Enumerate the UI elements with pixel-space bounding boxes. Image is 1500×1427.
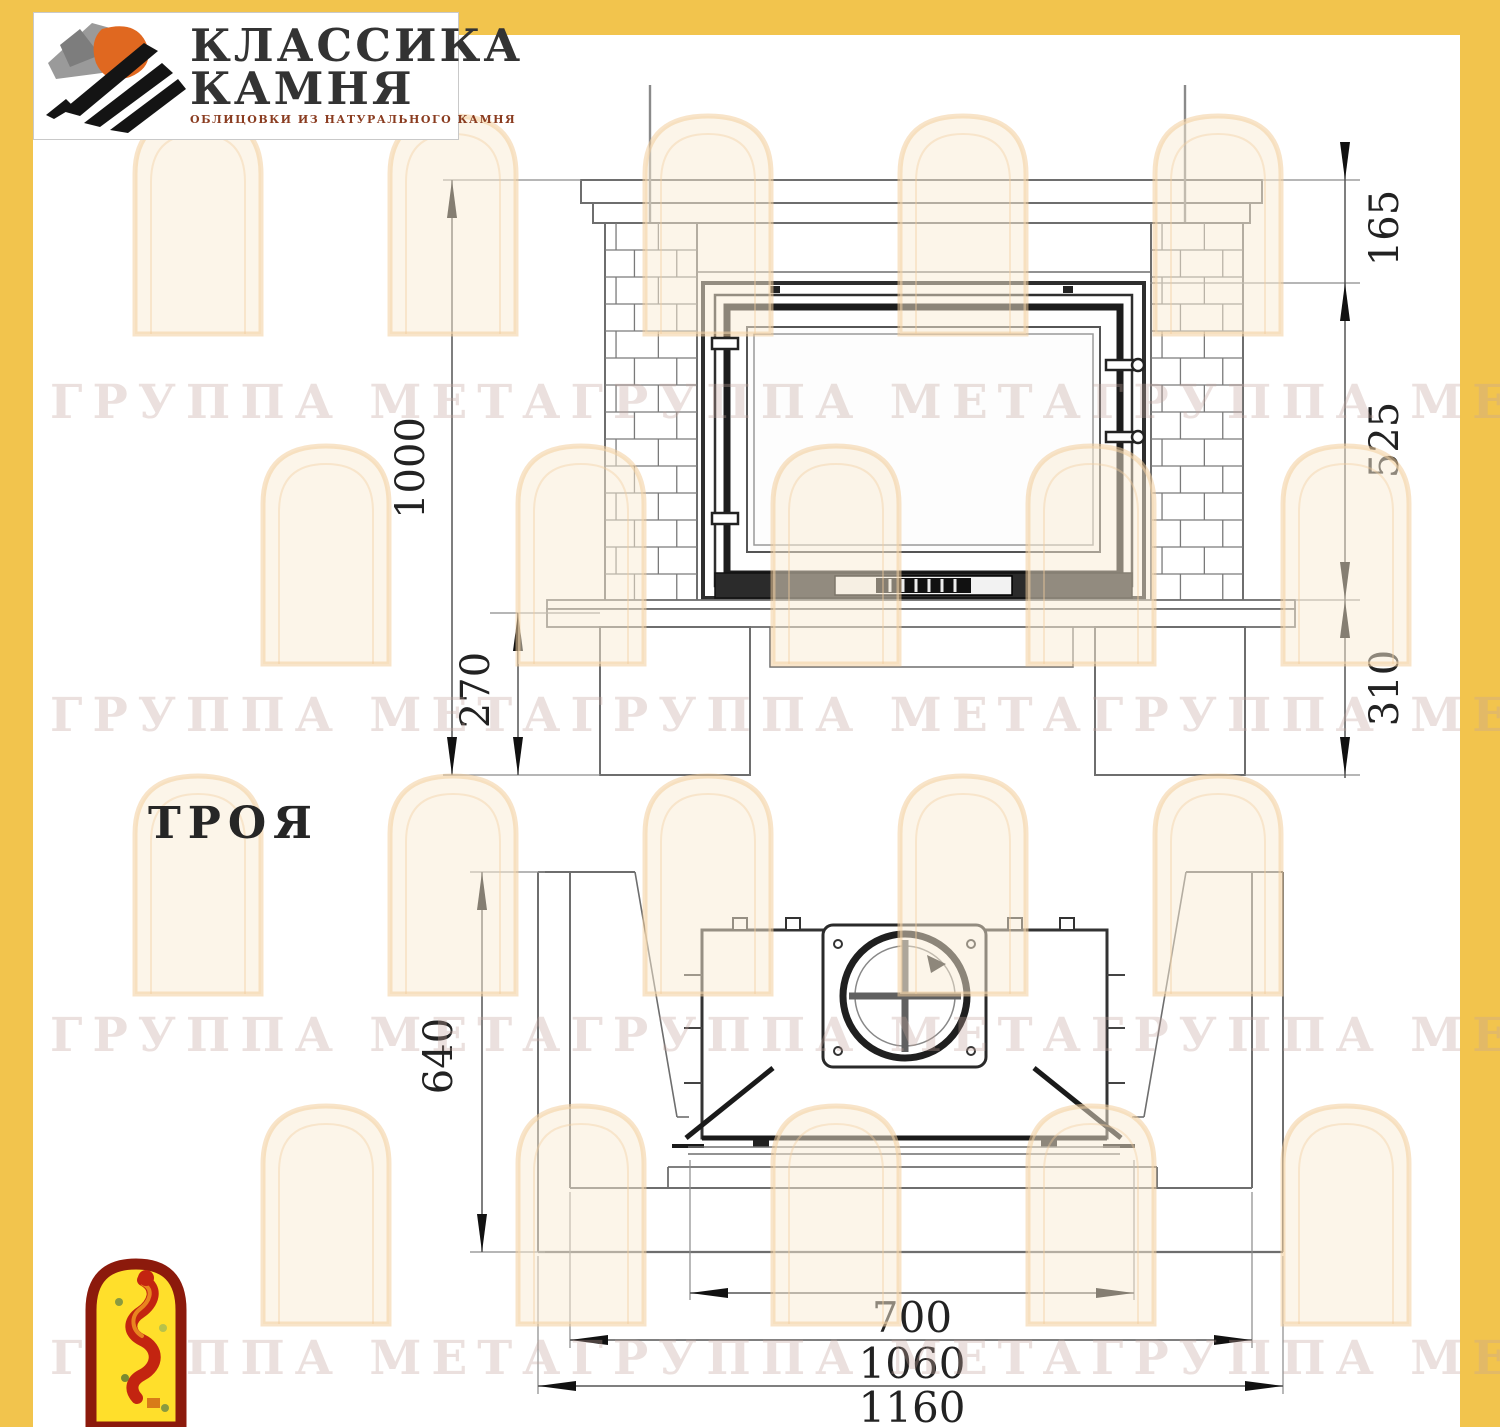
paper-background bbox=[33, 35, 1460, 1427]
stone-classic-emblem-icon bbox=[40, 15, 190, 135]
logo-line2: КАМНЯ bbox=[190, 68, 523, 109]
meta-flame-badge-icon bbox=[85, 1258, 187, 1427]
logo-subtitle: ОБЛИЦОВКИ ИЗ НАТУРАЛЬНОГО КАМНЯ bbox=[190, 113, 523, 126]
company-logo: КЛАССИКА КАМНЯ ОБЛИЦОВКИ ИЗ НАТУРАЛЬНОГО… bbox=[33, 12, 459, 140]
page: { "page": { "border_color": "#f2c44d", "… bbox=[0, 0, 1500, 1427]
model-name-label: ТРОЯ bbox=[148, 798, 319, 849]
